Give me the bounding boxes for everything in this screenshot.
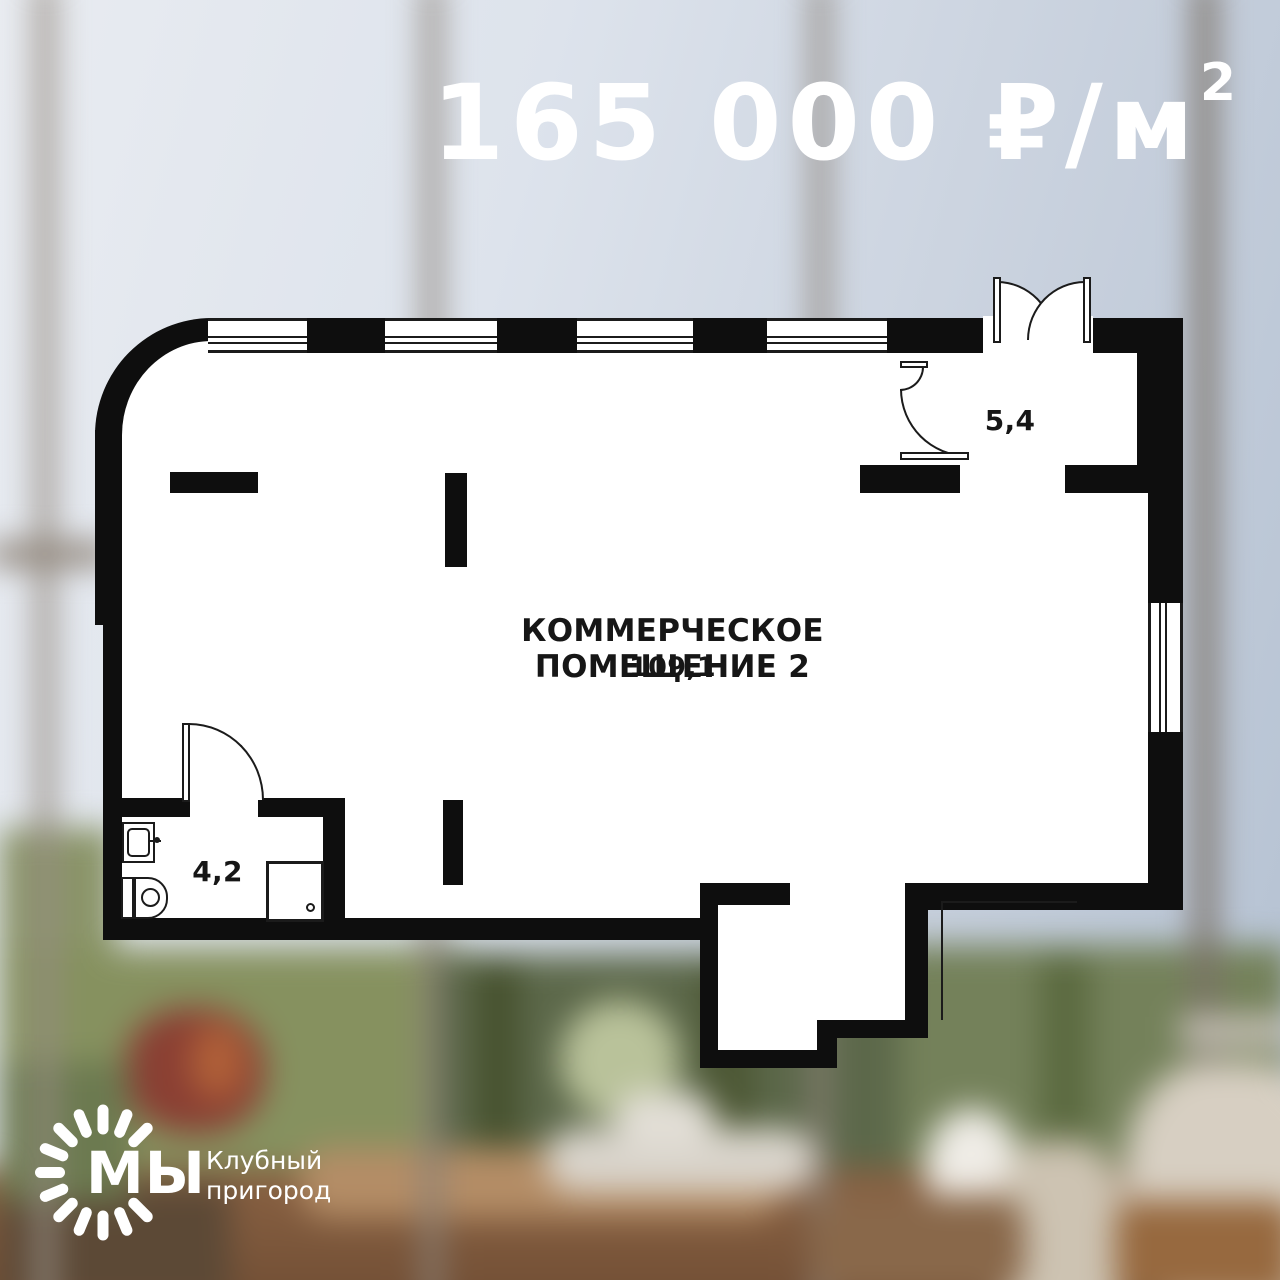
porch-fill-step [718,1020,817,1052]
brand-name-line1: Клубный [206,1146,331,1176]
price-superscript: 2 [1200,53,1236,113]
window-frame-line [1159,603,1161,732]
window-frame-line [577,336,693,338]
window-frame-line [577,342,693,344]
porch-terrace-line-h [941,901,1077,903]
window-frame-line [385,336,497,338]
wall-porch-lobe [700,883,790,905]
wall-stub-vertical-1 [445,473,467,567]
wall-porch-step-h [837,1020,928,1038]
window-frame-line [385,350,497,353]
wall-left-upper [95,430,122,625]
sunburst-ray [98,1104,109,1134]
wall-right-upper [1148,318,1183,603]
price-unit: ₽/м [986,62,1199,184]
floor-plan: КОММЕРЧЕСКОЕ ПОМЕЩЕНИЕ 2 109,1 5,4 4,2 [0,0,1280,1280]
wall-top-pier-4 [887,318,983,353]
wall-vestibule-inner-right [1137,341,1148,493]
wall-left-lower [103,620,122,940]
sunburst-ray [35,1167,65,1178]
bathroom-area-label: 4,2 [180,855,255,888]
wall-bathroom-top-left [103,798,190,817]
entrance-door-leaf-right [1083,277,1091,343]
ad-image: КОММЕРЧЕСКОЕ ПОМЕЩЕНИЕ 2 109,1 5,4 4,2 1… [0,0,1280,1280]
window-frame-line [208,342,307,344]
wall-porch-right [905,883,928,1038]
facade-window-3 [577,318,693,353]
wall-top-pier-1 [307,318,385,353]
window-frame-line [767,342,887,344]
porch-fill [718,905,905,1020]
wall-vestibule-bottom-right [1065,465,1148,493]
brand-name-line2: пригород [206,1176,331,1206]
entrance-door-swing-right [1027,281,1085,340]
window-frame-line [767,318,887,321]
window-frame-line [208,350,307,353]
window-frame-line [208,318,307,321]
wall-bathroom-right [323,798,345,940]
wall-top-pier-3 [693,318,767,353]
window-frame-line [577,350,693,353]
toilet-tank [121,877,134,919]
facade-window-right [1148,603,1183,732]
price-amount: 165 000 [432,62,944,184]
window-frame-line [385,342,497,344]
window-frame-line [1180,603,1183,732]
wall-rounded-corner [95,318,212,435]
sink-basin [127,828,150,857]
window-frame-line [767,336,887,338]
window-frame-line [767,350,887,353]
brand-name: Клубный пригород [206,1146,331,1206]
window-frame-line [208,336,307,338]
wall-bottom-right [928,883,1183,910]
vestibule-door-leaf [900,452,969,460]
porch-terrace-line-v [941,901,943,1020]
sunburst-ray [98,1210,109,1240]
shower-drain-dot [306,903,315,912]
wall-vestibule-bottom-left [860,465,960,493]
window-frame-line [1165,603,1167,732]
window-frame-line [1148,603,1151,732]
bathroom-door-leaf [182,723,190,802]
room-area-label: 109,1 [395,652,950,683]
entrance-door-leaf-left [993,277,1001,343]
price-headline: 165 000 ₽/м2 [432,62,1236,184]
window-frame-line [577,318,693,321]
toilet-seat-circle [141,888,160,907]
wall-porch-left [700,883,718,1068]
wall-stub-vertical-2 [443,800,463,885]
shower-tray [266,861,324,922]
facade-window-1 [208,318,307,353]
wall-stub-horizontal [170,472,258,493]
brand-mark: МЫ [86,1139,206,1207]
sink-faucet-dot [154,837,160,843]
vestibule-area-label: 5,4 [970,404,1050,437]
facade-window-4 [767,318,887,353]
wall-bottom-left [103,918,718,940]
window-frame-line [385,318,497,321]
wall-porch-bottom [700,1050,837,1068]
vestibule-door-leaf-small [900,361,928,368]
wall-top-pier-2 [497,318,577,353]
facade-window-2 [385,318,497,353]
